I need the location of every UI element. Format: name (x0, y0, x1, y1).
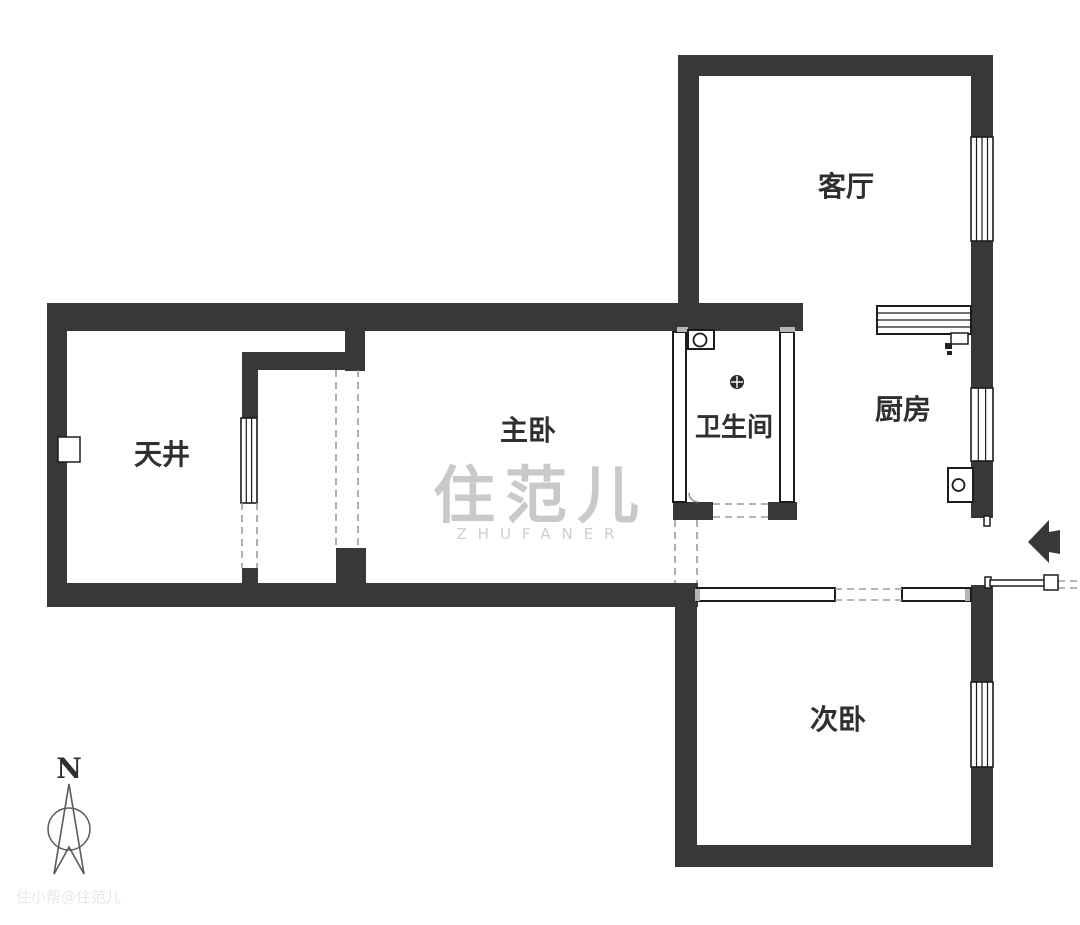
wall-tab (695, 589, 700, 601)
entrance-arrow-icon (1028, 520, 1060, 563)
fixtures (688, 306, 1060, 590)
floor-plan: 客厅 厨房 主卧 卫生间 天井 次卧 住范儿 ZHUFANER N 住小帮@住范… (0, 0, 1080, 925)
watermark-latin-text: ZHUFANER (456, 525, 625, 543)
wall-bed2-bottom (675, 845, 993, 867)
wall-mid-band-top (47, 303, 803, 331)
bathroom-label: 卫生间 (695, 413, 773, 443)
bathroom-left-wall (673, 332, 686, 502)
washing-machine-icon (688, 330, 714, 349)
courtyard-window-icon (241, 418, 257, 503)
compass-north-label: N (56, 752, 82, 785)
second-bedroom-window-icon (971, 682, 993, 767)
compass: N (48, 752, 90, 874)
water-heater-icon (948, 468, 973, 502)
courtyard-label: 天井 (134, 438, 190, 471)
watermark-logo-text: 住范儿 (433, 459, 649, 532)
bed2-top-wall-right-segment (902, 588, 971, 601)
windows (241, 137, 993, 767)
kitchen-window-icon (971, 388, 993, 461)
floor-plan-canvas: 客厅 厨房 主卧 卫生间 天井 次卧 住范儿 ZHUFANER N 住小帮@住范… (0, 0, 1080, 925)
wall-mid-band-bottom (47, 583, 698, 607)
master-bedroom-label: 主卧 (500, 414, 556, 447)
courtyard-wall-niche (58, 437, 80, 462)
wall-bath-bottom-left-stub (673, 502, 713, 520)
wall-tab (780, 327, 795, 332)
wall-tab (965, 589, 970, 601)
wall-master-left-stub (336, 548, 366, 585)
wall-courtyard-right-upper (242, 352, 258, 418)
gas-meter-icon (945, 333, 968, 355)
bathroom-door-arc (689, 493, 698, 502)
corner-watermark-text: 住小帮@住范儿 (16, 888, 121, 906)
bathroom-right-wall (780, 332, 794, 502)
wall-top-upper-block (678, 55, 993, 76)
living-room-label: 客厅 (818, 170, 874, 203)
wall-courtyard-right-stub (242, 568, 258, 588)
compass-needle-icon (54, 784, 84, 874)
wall-left-upper-block (678, 55, 699, 331)
floor-drain-icon (730, 375, 744, 389)
entry-door-jamb-top (984, 516, 990, 526)
wall-tab (677, 327, 688, 332)
compass-circle (48, 808, 90, 850)
entrance-door-handle (1044, 575, 1058, 590)
wall-courtyard-step-horizontal (242, 352, 365, 370)
center-watermark: 住范儿 ZHUFANER (433, 459, 649, 543)
bed2-top-wall-left-segment (697, 588, 835, 601)
living-room-window-icon (971, 137, 993, 241)
second-bedroom-label: 次卧 (810, 703, 866, 736)
wall-bed2-left (675, 583, 697, 867)
kitchen-counter-icon (877, 306, 971, 334)
kitchen-label: 厨房 (875, 393, 931, 426)
wall-bath-bottom-right-stub (768, 502, 797, 520)
